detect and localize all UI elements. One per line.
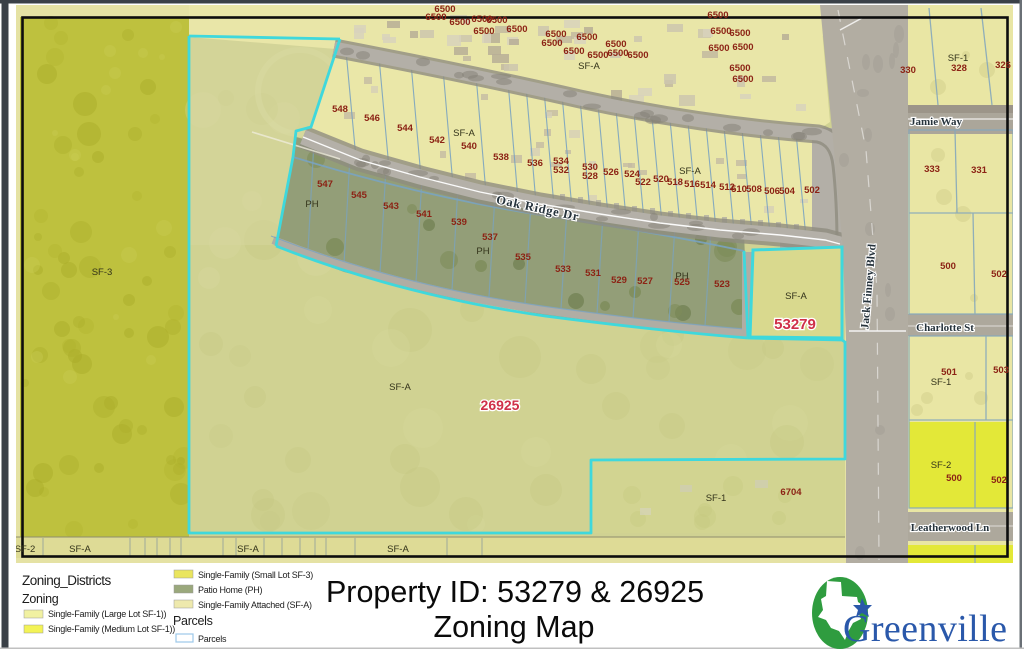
svg-text:504: 504 xyxy=(779,186,796,197)
svg-text:SF-1: SF-1 xyxy=(706,493,727,504)
svg-text:6500: 6500 xyxy=(732,74,753,85)
svg-text:53279: 53279 xyxy=(774,316,816,333)
svg-text:522: 522 xyxy=(635,177,651,188)
svg-text:6500: 6500 xyxy=(607,48,628,59)
svg-text:26925: 26925 xyxy=(481,397,520,413)
svg-text:Greenville: Greenville xyxy=(843,608,1007,649)
svg-text:Parcels: Parcels xyxy=(198,634,227,644)
svg-text:PH: PH xyxy=(476,246,489,257)
svg-text:SF-A: SF-A xyxy=(453,128,475,139)
svg-text:PH: PH xyxy=(305,199,318,210)
svg-text:6500: 6500 xyxy=(563,46,584,57)
svg-text:SF-2: SF-2 xyxy=(931,460,952,471)
svg-text:548: 548 xyxy=(332,104,348,115)
svg-text:SF-A: SF-A xyxy=(69,544,91,555)
svg-text:508: 508 xyxy=(746,184,762,195)
svg-text:6500: 6500 xyxy=(587,50,608,61)
svg-text:503: 503 xyxy=(993,365,1009,376)
svg-text:6500: 6500 xyxy=(576,32,597,43)
svg-text:SF-A: SF-A xyxy=(785,291,807,302)
svg-text:6500: 6500 xyxy=(506,24,527,35)
svg-text:SF-A: SF-A xyxy=(389,382,411,393)
svg-text:502: 502 xyxy=(991,475,1007,486)
svg-text:538: 538 xyxy=(493,152,509,163)
svg-text:SF-A: SF-A xyxy=(237,544,259,555)
svg-text:518: 518 xyxy=(667,177,683,188)
svg-text:Parcels: Parcels xyxy=(173,614,213,628)
svg-text:506: 506 xyxy=(764,186,780,197)
svg-text:6500: 6500 xyxy=(473,26,494,37)
svg-text:Charlotte St: Charlotte St xyxy=(916,322,974,334)
svg-text:333: 333 xyxy=(924,164,940,175)
svg-text:500: 500 xyxy=(940,261,956,272)
svg-text:536: 536 xyxy=(527,158,543,169)
svg-text:6704: 6704 xyxy=(780,487,802,498)
svg-text:531: 531 xyxy=(585,268,602,279)
svg-text:510: 510 xyxy=(731,184,747,195)
svg-text:514: 514 xyxy=(700,180,717,191)
svg-text:Zoning: Zoning xyxy=(22,592,59,606)
svg-text:SF-3: SF-3 xyxy=(92,267,113,278)
svg-text:Single-Family (Large Lot SF-1): Single-Family (Large Lot SF-1)) xyxy=(48,609,167,619)
svg-text:546: 546 xyxy=(364,113,380,124)
svg-text:SF-2: SF-2 xyxy=(15,544,36,555)
svg-text:Jamie Way: Jamie Way xyxy=(910,116,963,128)
svg-text:Patio Home (PH): Patio Home (PH) xyxy=(198,585,263,595)
svg-text:6500: 6500 xyxy=(708,43,729,54)
svg-text:PH: PH xyxy=(675,271,688,282)
svg-text:SF-A: SF-A xyxy=(387,544,409,555)
svg-text:526: 526 xyxy=(603,167,619,178)
svg-text:6500: 6500 xyxy=(732,42,753,53)
svg-text:544: 544 xyxy=(397,123,414,134)
svg-text:502: 502 xyxy=(804,185,820,196)
svg-text:6500: 6500 xyxy=(627,50,648,61)
svg-text:Single-Family Attached (SF-A): Single-Family Attached (SF-A) xyxy=(198,600,312,610)
svg-text:328: 328 xyxy=(951,63,967,74)
svg-text:540: 540 xyxy=(461,141,477,152)
svg-text:331: 331 xyxy=(971,165,988,176)
svg-text:330: 330 xyxy=(900,65,916,76)
svg-text:532: 532 xyxy=(553,165,569,176)
svg-text:543: 543 xyxy=(383,201,399,212)
svg-text:523: 523 xyxy=(714,279,730,290)
svg-text:516: 516 xyxy=(684,179,700,190)
svg-text:6500: 6500 xyxy=(486,15,507,26)
svg-text:SF-A: SF-A xyxy=(578,61,600,72)
svg-text:Single-Family (Small Lot SF-3): Single-Family (Small Lot SF-3) xyxy=(198,570,313,580)
svg-text:539: 539 xyxy=(451,217,467,228)
svg-text:6500: 6500 xyxy=(729,28,750,39)
svg-text:Zoning_Districts: Zoning_Districts xyxy=(22,573,112,588)
svg-text:545: 545 xyxy=(351,190,368,201)
svg-text:528: 528 xyxy=(582,171,598,182)
svg-text:SF-A: SF-A xyxy=(679,166,701,177)
svg-text:326: 326 xyxy=(995,60,1011,71)
svg-text:SF-1: SF-1 xyxy=(948,53,969,64)
svg-text:6500: 6500 xyxy=(541,38,562,49)
svg-text:547: 547 xyxy=(317,179,333,190)
svg-text:6500: 6500 xyxy=(449,17,470,28)
svg-text:533: 533 xyxy=(555,264,571,275)
svg-text:527: 527 xyxy=(637,276,653,287)
svg-text:Single-Family (Medium Lot SF-1: Single-Family (Medium Lot SF-1)) xyxy=(48,624,175,634)
svg-text:6500: 6500 xyxy=(729,63,750,74)
svg-text:Property ID: 53279 & 26925: Property ID: 53279 & 26925 xyxy=(326,575,704,609)
svg-text:542: 542 xyxy=(429,135,445,146)
svg-text:6500: 6500 xyxy=(707,10,728,21)
svg-text:537: 537 xyxy=(482,232,498,243)
svg-text:500: 500 xyxy=(946,473,962,484)
svg-text:Leatherwood Ln: Leatherwood Ln xyxy=(911,522,990,534)
svg-text:6500: 6500 xyxy=(425,12,446,23)
svg-text:502: 502 xyxy=(991,269,1007,280)
svg-text:SF-1: SF-1 xyxy=(931,377,952,388)
svg-text:Zoning Map: Zoning Map xyxy=(433,610,594,644)
svg-text:541: 541 xyxy=(416,209,433,220)
svg-text:6500: 6500 xyxy=(710,26,731,37)
svg-text:535: 535 xyxy=(515,252,532,263)
svg-text:529: 529 xyxy=(611,275,627,286)
